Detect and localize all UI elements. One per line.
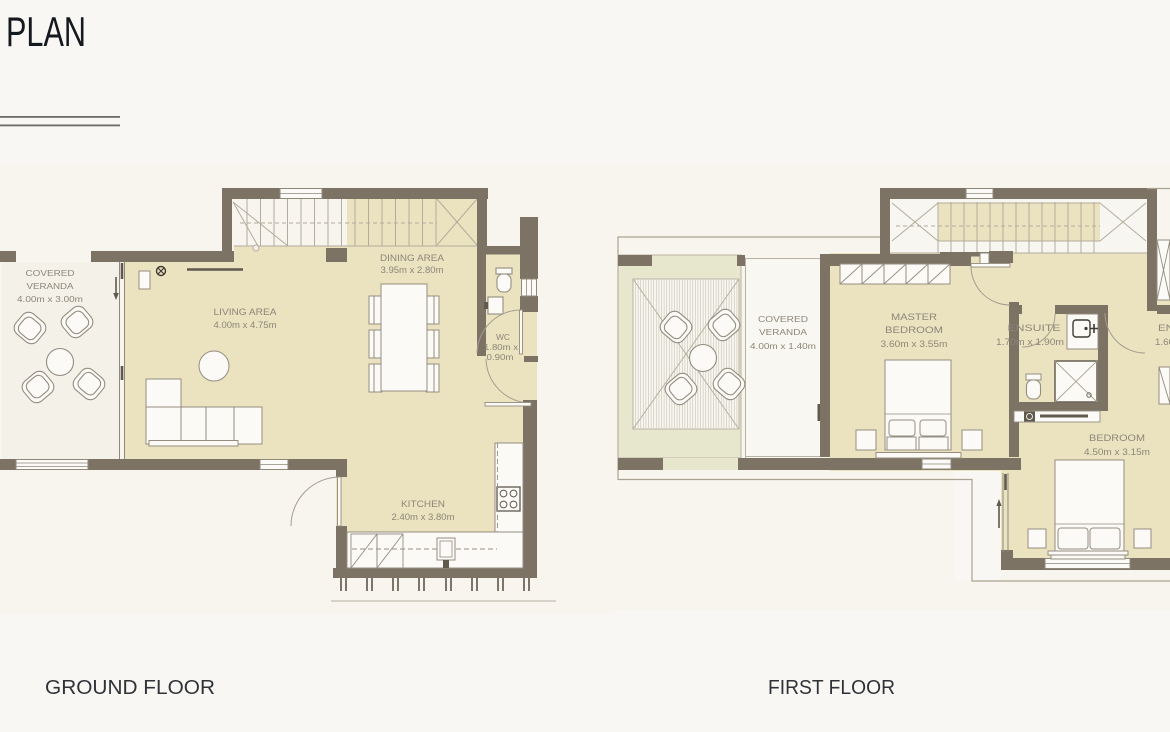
svg-text:4.50m x 3.15m: 4.50m x 3.15m <box>1084 447 1150 457</box>
svg-text:2.40m x 3.80m: 2.40m x 3.80m <box>392 512 455 522</box>
svg-text:BEDROOM: BEDROOM <box>885 325 943 335</box>
svg-text:3.60m x 3.55m: 3.60m x 3.55m <box>881 339 948 349</box>
svg-text:GROUND FLOOR: GROUND FLOOR <box>45 676 215 699</box>
svg-text:1.80m x: 1.80m x <box>484 342 519 352</box>
svg-text:KITCHEN: KITCHEN <box>401 499 445 509</box>
svg-text:COVERED: COVERED <box>758 314 808 324</box>
svg-text:VERANDA: VERANDA <box>27 281 74 291</box>
svg-text:PLAN: PLAN <box>6 8 86 55</box>
svg-text:FIRST FLOOR: FIRST FLOOR <box>768 676 895 699</box>
svg-text:WC: WC <box>496 332 510 342</box>
svg-text:0.90m: 0.90m <box>487 352 514 362</box>
svg-text:LIVING AREA: LIVING AREA <box>214 307 277 317</box>
svg-text:4.00m x 4.75m: 4.00m x 4.75m <box>214 320 277 330</box>
svg-text:3.95m x 2.80m: 3.95m x 2.80m <box>381 265 444 275</box>
svg-text:4.00m x 3.00m: 4.00m x 3.00m <box>17 294 83 304</box>
svg-text:EN: EN <box>1158 323 1170 333</box>
svg-text:MASTER: MASTER <box>891 312 937 322</box>
svg-text:BEDROOM: BEDROOM <box>1089 433 1145 443</box>
svg-text:1.70m x 1.90m: 1.70m x 1.90m <box>996 337 1064 347</box>
svg-text:VERANDA: VERANDA <box>759 327 807 337</box>
svg-text:DINING AREA: DINING AREA <box>380 253 444 263</box>
svg-text:1.60: 1.60 <box>1155 337 1170 347</box>
svg-text:4.00m x 1.40m: 4.00m x 1.40m <box>750 341 816 351</box>
svg-text:ENSUITE: ENSUITE <box>1008 323 1061 333</box>
svg-text:COVERED: COVERED <box>26 268 75 278</box>
